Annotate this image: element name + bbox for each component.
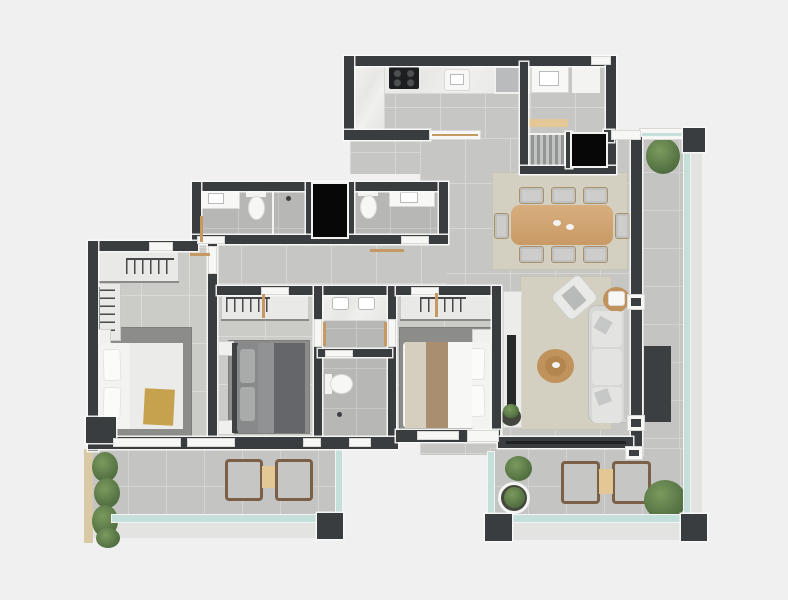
balcony-left-table xyxy=(262,466,275,488)
bedroom3-blanket-beige xyxy=(405,342,426,428)
railing-left-bottom xyxy=(112,515,340,522)
kitchen-sink-basin xyxy=(450,74,464,85)
master-pillow-1 xyxy=(102,349,121,382)
terrace-bush-big xyxy=(644,480,686,520)
terrace-potted-plant xyxy=(504,487,525,508)
master-closet-hangers-side xyxy=(98,287,115,331)
window-midbath xyxy=(350,439,370,446)
dining-chair-5 xyxy=(551,246,576,263)
wall-kitchen-left xyxy=(344,56,354,140)
bathA-toilet-tank xyxy=(246,190,266,197)
door-kitchen-track xyxy=(432,134,478,136)
dining-chair-1 xyxy=(519,187,544,204)
window-small-west xyxy=(304,439,320,446)
washing-machine xyxy=(528,135,564,166)
wall-kitchen-top xyxy=(344,56,616,66)
wall-laundry-divider xyxy=(520,62,528,174)
side-table-tray xyxy=(609,292,624,305)
bedroom3-closet-line xyxy=(400,319,494,321)
door-leaf-master xyxy=(190,253,210,256)
tv xyxy=(507,335,516,415)
master-pillow-2 xyxy=(102,387,121,420)
window-bedroom3 xyxy=(418,432,458,439)
door-leaf-bedroom2 xyxy=(262,294,265,318)
pillar-master-sw xyxy=(86,417,116,443)
laundry-cabinet xyxy=(572,67,600,93)
pillar-top-right xyxy=(683,128,705,152)
pillar-terrace-sw xyxy=(485,514,512,541)
master-closet-hangers xyxy=(126,258,174,274)
window-master-balcony xyxy=(114,439,180,446)
bathA-sink-basin xyxy=(208,193,224,204)
laundry-sink-basin xyxy=(539,71,559,86)
corridor-floor xyxy=(196,238,446,290)
door-leaf-bedroom3 xyxy=(435,293,438,317)
pillar-terrace-se xyxy=(681,514,707,541)
terrace-table xyxy=(599,469,613,494)
railing-balcony-right xyxy=(684,136,690,520)
entry-console xyxy=(528,119,568,127)
dining-chair-head-left xyxy=(494,213,509,239)
terrace-bush-small xyxy=(505,456,532,481)
mullion-mark-1-core xyxy=(631,298,641,306)
balcony-right-bench xyxy=(644,346,671,422)
dining-table xyxy=(511,205,613,245)
dining-chair-4 xyxy=(519,246,544,263)
shaft-bath-core xyxy=(313,184,347,237)
pillar-balcony-left-se xyxy=(317,513,343,539)
door-midbath-left xyxy=(315,320,321,346)
bathA-shower-head xyxy=(286,196,291,201)
ledge-balcony-right xyxy=(689,136,702,538)
master-closet-shelf-line xyxy=(95,281,179,283)
bathB-toilet-bowl xyxy=(361,196,376,218)
wall-master-top xyxy=(88,241,198,251)
cooktop xyxy=(389,67,419,89)
bedroom3-throw-tan xyxy=(424,342,448,428)
floor-plan-image xyxy=(0,0,788,600)
coffee-table-decor xyxy=(552,362,560,368)
kitchen-counter-left xyxy=(354,65,384,135)
wall-midbath-top xyxy=(314,286,396,295)
hedge-2 xyxy=(94,478,120,508)
window-kitchen-top xyxy=(592,57,610,64)
hedge-4 xyxy=(96,528,120,548)
door-leaf-bathA xyxy=(200,216,203,242)
bedroom2-closet-line xyxy=(221,319,309,321)
door-midbath-inner xyxy=(326,351,352,356)
door-midbath-right xyxy=(389,320,395,346)
door-bedroom2-balcony xyxy=(188,439,234,446)
door-master xyxy=(209,247,216,273)
kitchen-cabinet xyxy=(494,66,522,94)
bedroom2-pillow-1 xyxy=(240,349,255,383)
balcony-left-armchair-1 xyxy=(225,459,263,501)
dining-centerpiece-1 xyxy=(553,220,561,226)
dining-chair-2 xyxy=(551,187,576,204)
bedroom2-pillow-2 xyxy=(240,387,255,421)
sofa-cushion-2 xyxy=(592,349,622,385)
midbath-toilet-bowl xyxy=(331,375,352,393)
ledge-left xyxy=(92,520,342,538)
railing-balcony-top-glass xyxy=(642,133,682,136)
midbath-shower-head xyxy=(337,412,342,417)
bedroom3-duvet-white xyxy=(446,342,472,428)
door-bathB xyxy=(402,237,428,243)
mullion-mark-3-core xyxy=(629,450,639,456)
wall-bedroom3-right xyxy=(492,286,501,436)
bathB-sink-basin xyxy=(400,192,418,203)
door-leaf-bathB xyxy=(370,249,404,252)
window-master-top xyxy=(150,243,172,250)
apartment-floor-plan xyxy=(0,0,788,600)
door-bedroom2 xyxy=(262,288,288,294)
balcony-right-plant xyxy=(646,138,680,174)
wall-midbath-left xyxy=(314,286,322,446)
door-leaf-midbath-left xyxy=(323,322,326,346)
vanity-basin-1 xyxy=(332,297,349,310)
bathA-toilet-bowl xyxy=(249,197,264,219)
bedroom3-closet-hangers xyxy=(420,297,466,312)
bathA-shower-screen xyxy=(272,188,274,236)
balcony-left-armchair-2 xyxy=(275,459,313,501)
wall-service-right xyxy=(606,56,616,174)
terrace-doors-glassline xyxy=(506,441,626,444)
door-terrace-white xyxy=(468,431,498,441)
living-plant xyxy=(503,404,519,418)
railing-terrace-bottom xyxy=(512,515,682,522)
ledge-right xyxy=(490,520,706,540)
wall-midbath-right xyxy=(388,286,396,446)
master-gold-throw xyxy=(143,388,175,426)
mullion-mark-2-core xyxy=(631,419,641,427)
vanity-basin-2 xyxy=(358,297,375,310)
dining-centerpiece-2 xyxy=(566,224,574,230)
railing-terrace-left xyxy=(488,452,494,518)
railing-left-end xyxy=(336,450,342,518)
dining-chair-head-right xyxy=(615,213,630,239)
dining-chair-6 xyxy=(583,246,608,263)
shaft-laundry xyxy=(572,134,606,166)
terrace-armchair-1 xyxy=(561,461,600,504)
wall-kitchen-bottom xyxy=(344,130,430,140)
dining-chair-3 xyxy=(583,187,608,204)
bedroom2-blanket xyxy=(258,343,274,433)
door-top-right xyxy=(612,131,640,139)
door-leaf-midbath-right xyxy=(384,322,387,346)
